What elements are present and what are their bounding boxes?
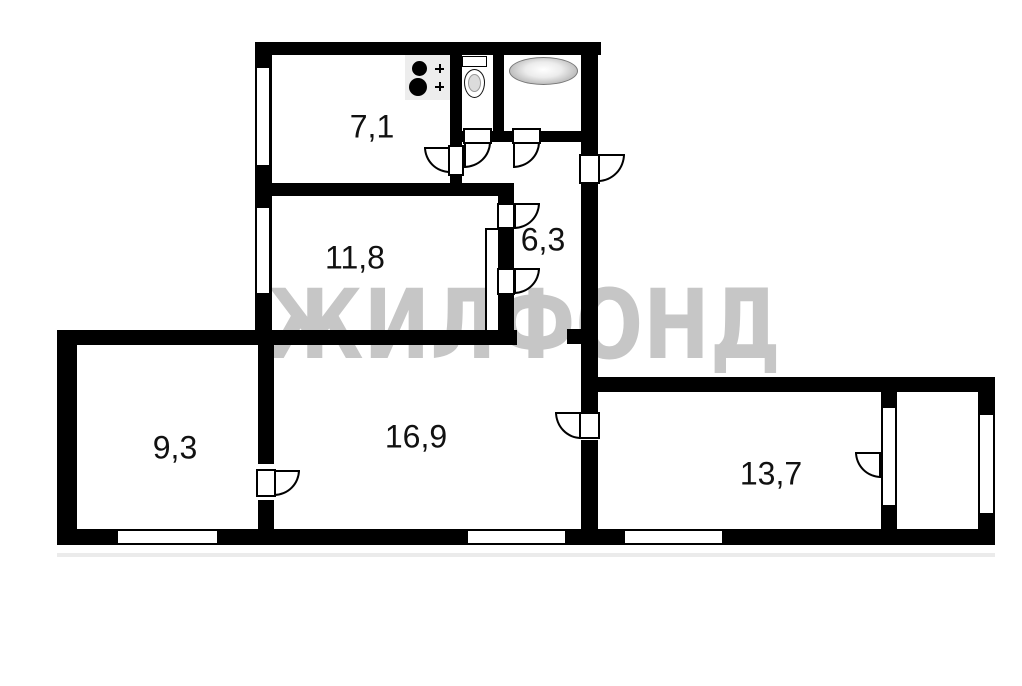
door-arc-entrance bbox=[598, 154, 625, 182]
door-arc-room-right bbox=[555, 412, 581, 439]
stove-burner-icon bbox=[409, 78, 427, 96]
floor-plan: ЖИЛФОНД bbox=[0, 0, 1022, 686]
door-leaf-entrance bbox=[579, 154, 600, 184]
area-label-hallway: 6,3 bbox=[521, 222, 565, 259]
door-arc-room-bottom-left bbox=[274, 470, 300, 496]
door-leaf-wc bbox=[463, 128, 492, 144]
window-room-right bbox=[625, 531, 722, 543]
wall-wc-bath-divider bbox=[493, 42, 504, 142]
wall-kitchen-room-divider bbox=[255, 183, 514, 196]
stove-icon bbox=[405, 55, 450, 100]
area-label-room-bottom-left: 9,3 bbox=[153, 430, 197, 467]
toilet-tank-icon bbox=[462, 56, 487, 67]
wall-right-main bbox=[581, 42, 598, 545]
door-leaf-room-bottom-left bbox=[256, 469, 276, 497]
stove-knob-icon bbox=[435, 82, 444, 91]
door-arc-wc bbox=[464, 142, 491, 168]
wall-stub bbox=[567, 329, 581, 344]
wall-horizontal-divider bbox=[57, 330, 517, 345]
door-arc-kitchen bbox=[424, 147, 450, 173]
wall-right-block-top bbox=[596, 377, 995, 392]
window-room-top bbox=[257, 208, 269, 293]
window-room-center bbox=[468, 531, 565, 543]
bathtub-icon bbox=[509, 57, 578, 85]
stove-burner-icon bbox=[412, 61, 427, 76]
door-leaf-room-right bbox=[579, 412, 600, 439]
wall-left-lower-exterior bbox=[57, 330, 77, 545]
door-leaf-bathroom bbox=[512, 128, 541, 144]
door-arc-balcony bbox=[855, 452, 881, 478]
window-room-bottom-left bbox=[118, 531, 217, 543]
area-label-kitchen: 7,1 bbox=[350, 109, 394, 146]
door-leaf-kitchen bbox=[448, 145, 464, 176]
window-balcony-right bbox=[980, 415, 993, 513]
area-label-room-top: 11,8 bbox=[325, 240, 385, 277]
door-leaf-room-top bbox=[497, 203, 515, 229]
area-label-room-right: 13,7 bbox=[740, 456, 802, 493]
window-kitchen bbox=[257, 68, 269, 165]
window-balcony-block bbox=[883, 408, 895, 505]
door-arc-bathroom bbox=[513, 142, 540, 168]
wall-top-exterior bbox=[255, 42, 601, 55]
toilet-bowl-icon bbox=[468, 74, 481, 92]
door-leaf-closet bbox=[497, 268, 515, 295]
stove-knob-icon bbox=[435, 64, 444, 73]
scan-artifact-line bbox=[57, 553, 995, 557]
area-label-room-center: 16,9 bbox=[385, 419, 447, 456]
